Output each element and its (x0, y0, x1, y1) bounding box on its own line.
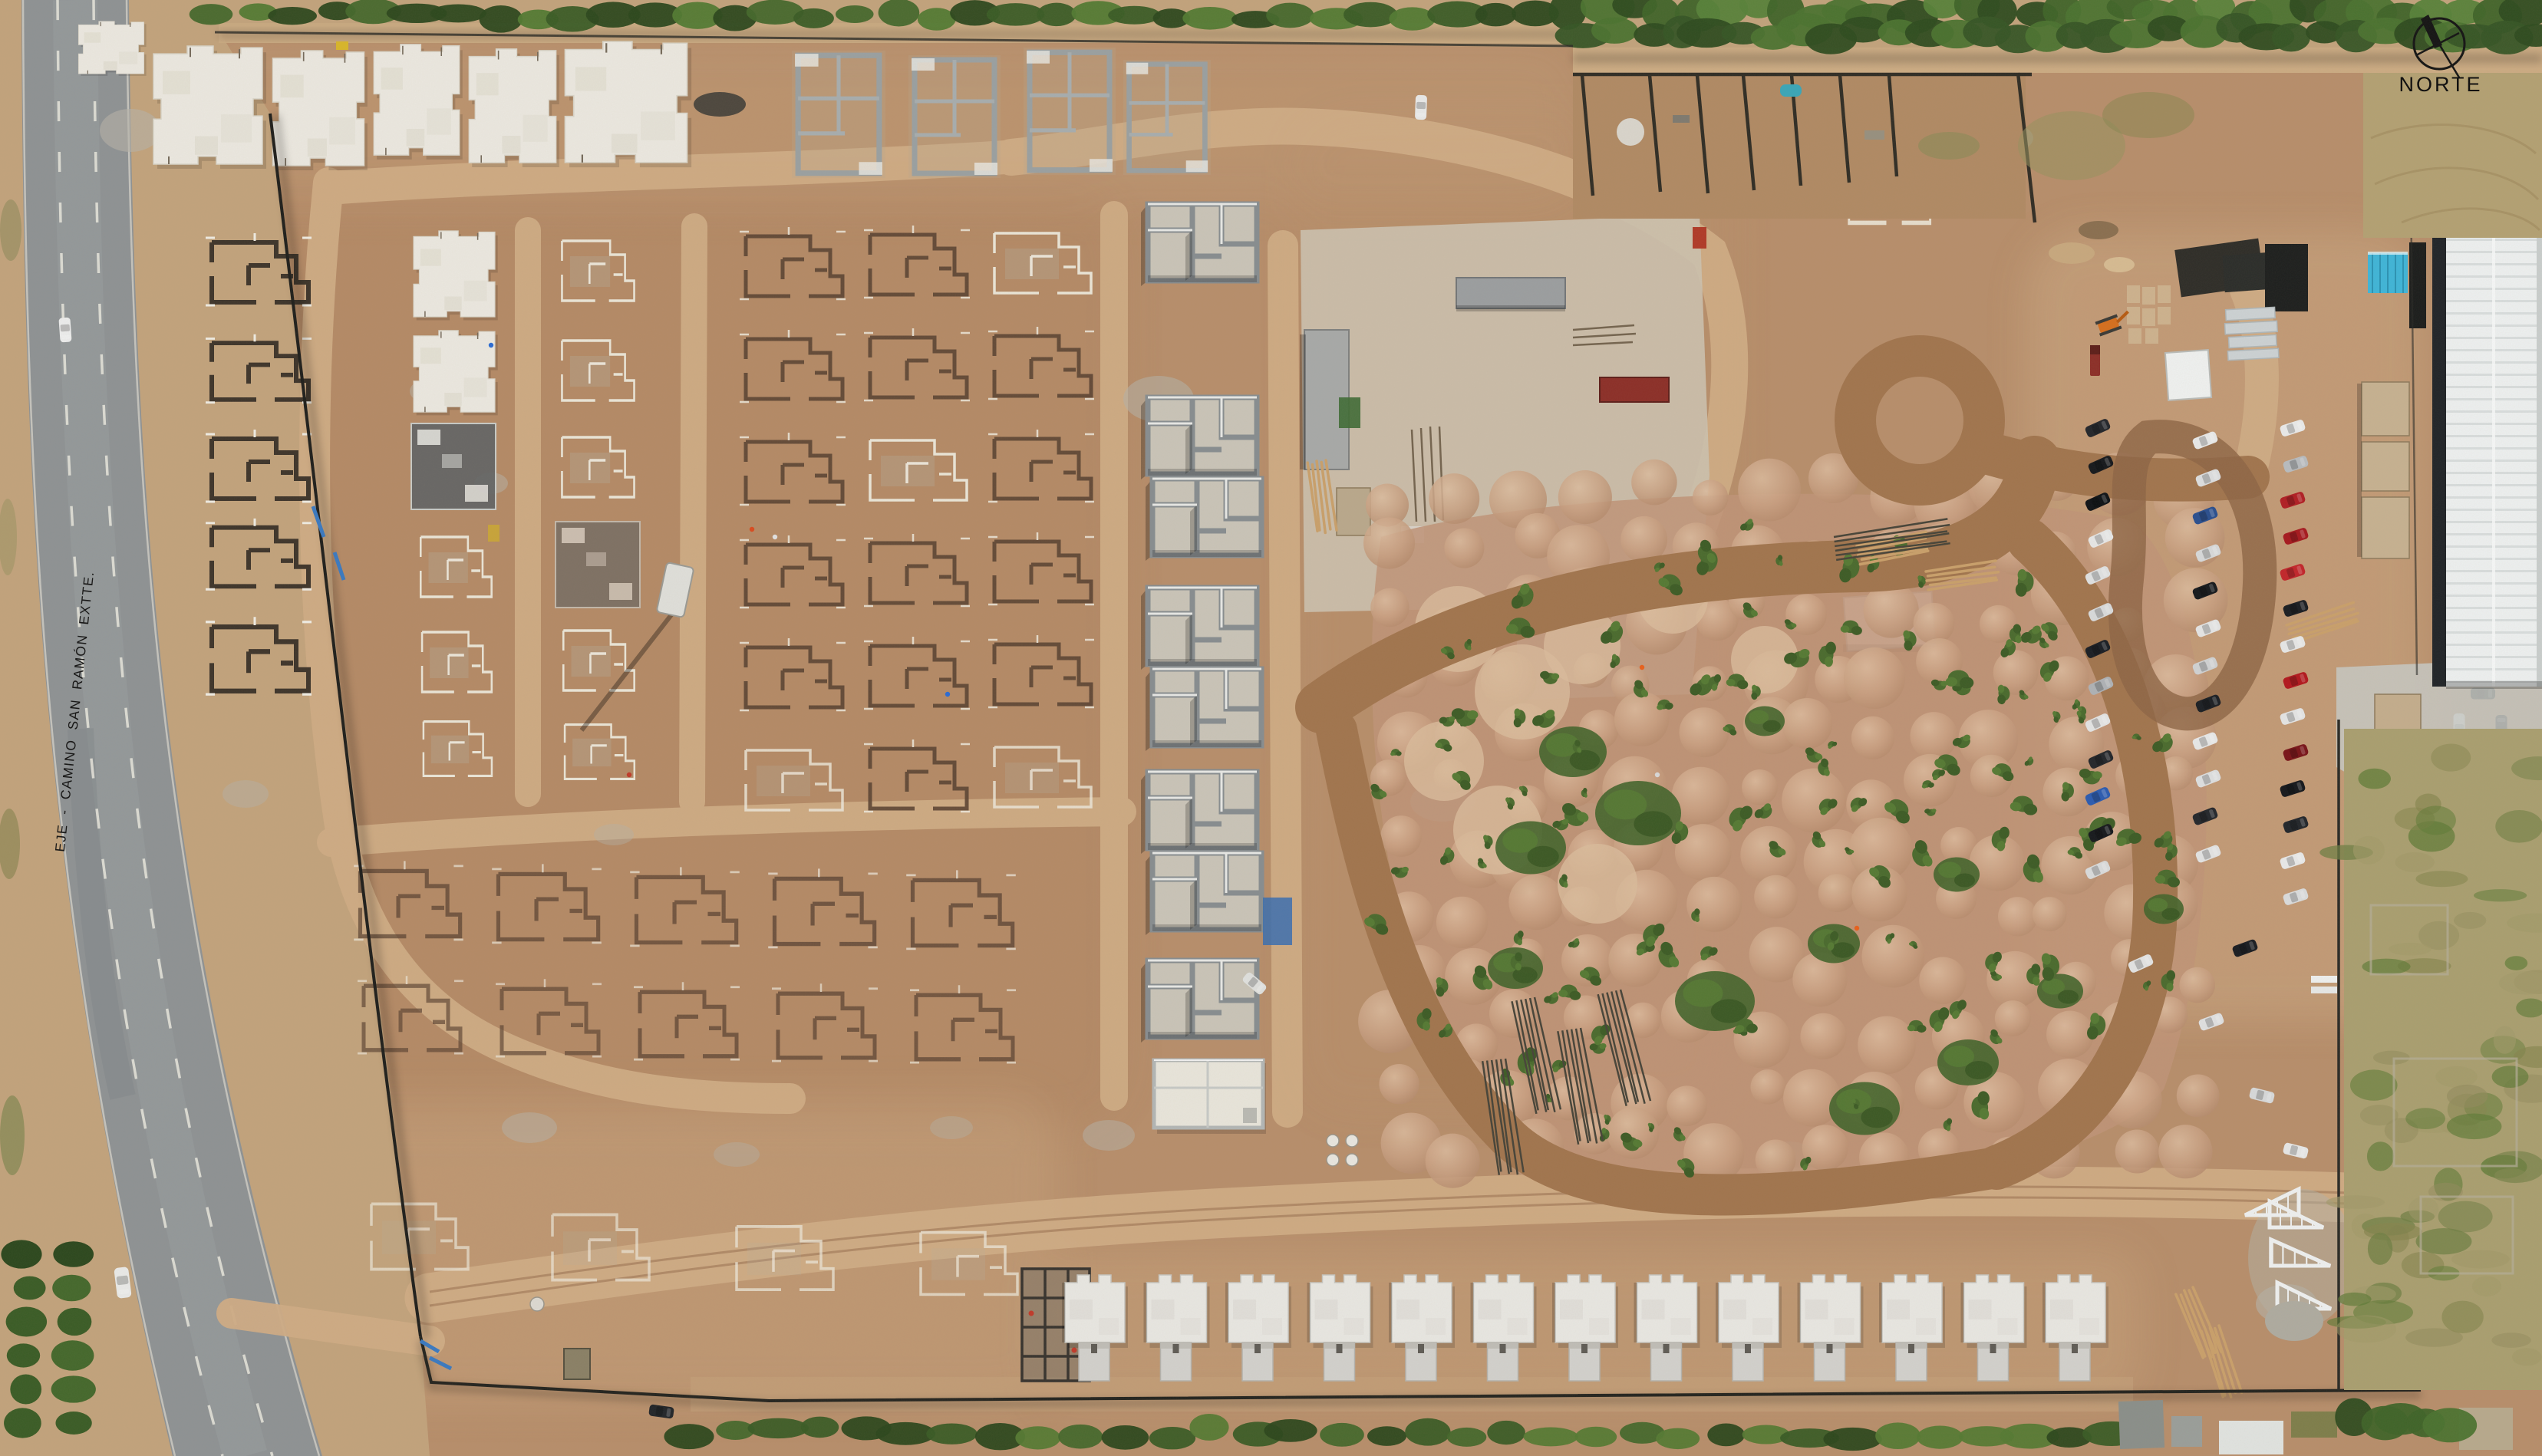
orthophoto-canvas: EJE - CAMINO SAN RAMÓN EXTTE. (0, 0, 2542, 1456)
aerial-orthophoto-construction-site: EJE - CAMINO SAN RAMÓN EXTTE. (0, 0, 2542, 1456)
photo-grain-overlay (0, 0, 2542, 1456)
